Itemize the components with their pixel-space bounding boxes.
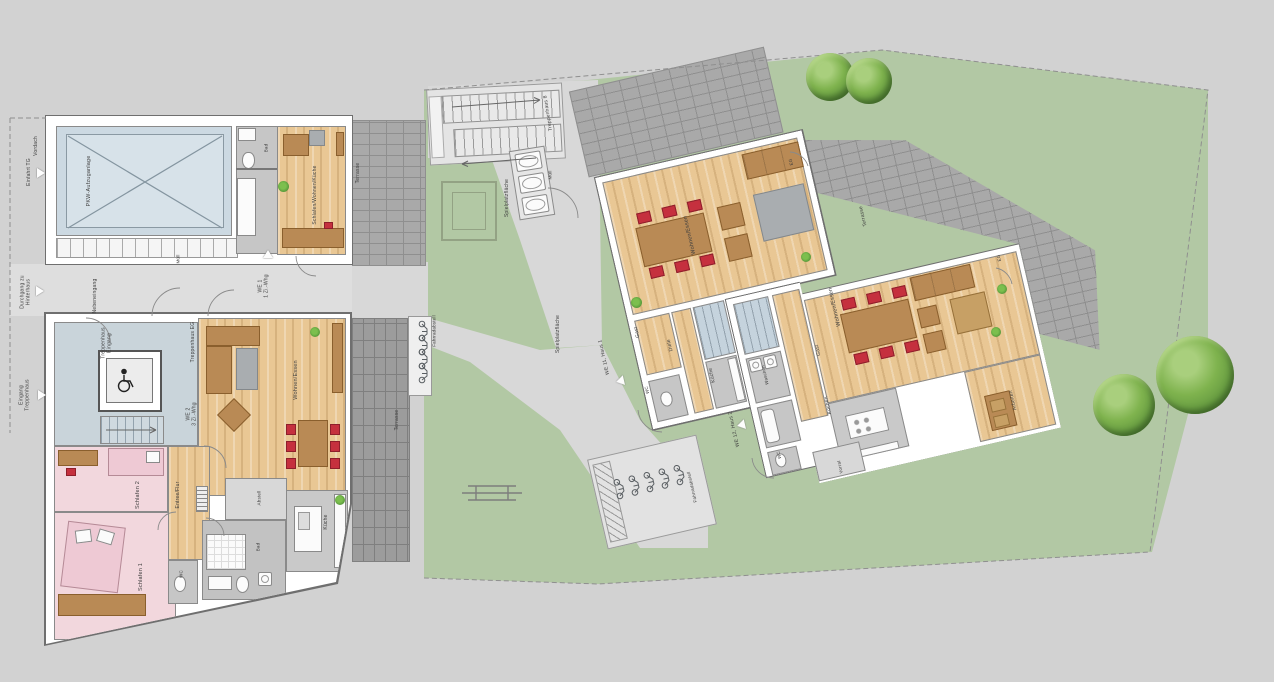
label-muell-2: Müll <box>547 170 552 179</box>
direction-arrow-icon <box>36 286 44 296</box>
label-we1: WE 1 1 Zi.-Whg <box>258 274 270 297</box>
label-schlafen-2-we2: Schlafen 2 <box>135 481 141 509</box>
direction-arrow-icon <box>37 168 45 178</box>
label-eingang-treppenhaus: Eingang Treppenhaus <box>19 379 31 410</box>
stair-arrow-icon <box>106 98 540 434</box>
label-schlafen-wohnen-kueche-we1: Schlafen/Wohnen/Küche <box>313 165 319 224</box>
label-schlafen-1-we2: Schlafen 1 <box>138 563 144 591</box>
tree-icon <box>1093 374 1155 436</box>
label-terrasse-we2: Terrasse <box>395 410 401 431</box>
plant-icon <box>278 181 289 192</box>
label-we2: WE 2 3 Zi.-Whg <box>186 402 198 425</box>
label-kueche-we2: Küche <box>324 514 330 529</box>
label-treppenhaus-eg: Treppenhaus EG <box>191 322 197 363</box>
label-fahrradabstell-1: Fahrradabstell <box>431 315 436 347</box>
label-durchgang-zu-hinterhaus: Durchgang zu Hinterhaus <box>20 275 32 309</box>
site-plan: VordachEinfahrt TGDurchgang zu Hinterhau… <box>0 0 1274 682</box>
direction-arrow-icon <box>263 250 273 258</box>
plant-icon <box>310 327 320 337</box>
label-bad-we1: Bad <box>263 144 268 153</box>
plant-icon <box>991 327 1001 337</box>
plant-icon <box>801 252 811 262</box>
label-wohnen-essen-we2: Wohnen/Essen <box>293 360 299 400</box>
plant-icon <box>997 284 1007 294</box>
label-treppenhaus-eingang: Treppenhaus Eingang <box>101 327 113 358</box>
label-spielplatzflaeche-2: Spielplatzfläche <box>556 315 562 353</box>
direction-arrow-icon <box>38 390 46 400</box>
label-vordach: Vordach <box>34 136 40 156</box>
bike-icons-south <box>613 464 685 499</box>
label-wc-we2: WC <box>178 570 183 578</box>
property-boundary-dashed <box>10 50 1208 584</box>
plant-icon <box>631 297 642 308</box>
tree-icon <box>846 58 892 104</box>
wheelchair-icon <box>119 369 134 391</box>
label-spielplatzflaeche-1: Spielplatzfläche <box>505 179 511 217</box>
label-entree-flur-we2: Entree/Flur <box>176 482 182 509</box>
plant-icon <box>335 495 345 505</box>
label-muell-garage: Müll <box>175 254 180 263</box>
label-bad-we2: Bad <box>255 543 260 552</box>
picnic-table-icon <box>462 486 522 500</box>
label-nebeneingang: Nebeneingang <box>93 279 99 314</box>
label-abstell-we2: Abstell <box>256 491 261 506</box>
bike-icons-west <box>419 321 427 383</box>
label-terrasse-we1: Terrasse <box>356 163 362 184</box>
door-arcs <box>86 152 1012 536</box>
label-pkw-aufzuganlage: PKW-Aufzuganlage <box>86 155 92 206</box>
tree-icon <box>1156 336 1234 414</box>
label-einfahrt-tg: Einfahrt TG <box>27 158 33 186</box>
